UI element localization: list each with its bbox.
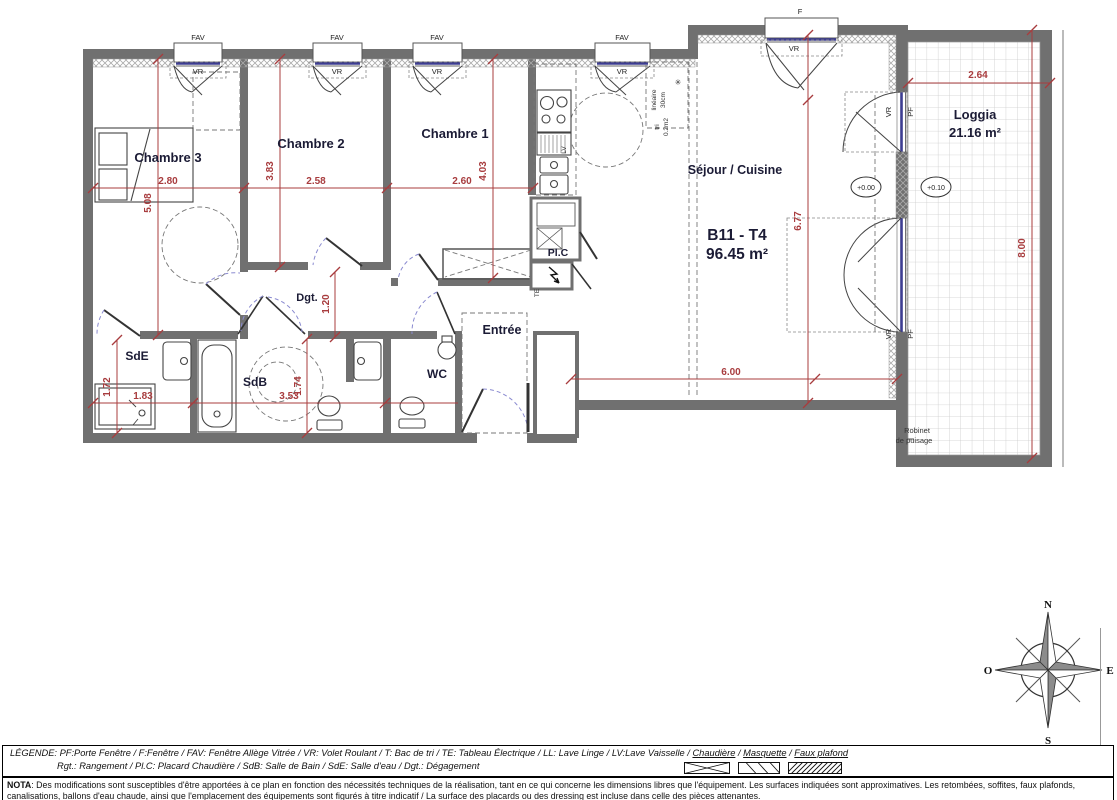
- fav-tag-3: FAV: [430, 33, 444, 42]
- compass-north: N: [1044, 599, 1052, 611]
- dim-loggia-w: 2.64: [968, 70, 988, 81]
- turning-circle-chambre3: [162, 207, 238, 283]
- dim-sde-w: 1.83: [133, 391, 153, 402]
- legend-sep1: /: [735, 748, 743, 758]
- legend-chaudiere: Chaudière: [692, 748, 735, 758]
- robinet-line2: de puisage: [896, 436, 933, 445]
- chaudiere-swatch-icon: [684, 762, 730, 774]
- level-loggia: +0.10: [927, 185, 945, 192]
- bed: [95, 128, 193, 202]
- dim-loggia-h: 8.00: [1017, 238, 1028, 258]
- lineaire-label: linéaire: [651, 89, 658, 110]
- faux-plafond-swatch-icon: [788, 762, 842, 774]
- dim-sejour-h: 6.77: [793, 211, 804, 231]
- label-plc: Pl.C: [548, 247, 569, 259]
- placard-entree-box: [535, 333, 577, 436]
- compass-east: E: [1106, 665, 1113, 677]
- label-sejour: Séjour / Cuisine: [688, 163, 783, 177]
- fav-tag-4: FAV: [615, 33, 629, 42]
- compass-rose: N S E O: [984, 599, 1114, 745]
- vr-tag-4: VR: [617, 67, 628, 76]
- wc-toilet: [399, 397, 425, 428]
- nota-label: NOTA: [7, 780, 31, 790]
- label-sdb: SdB: [243, 375, 267, 389]
- compass-south: S: [1045, 735, 1051, 745]
- dim-sejour-w: 6.00: [721, 367, 741, 378]
- legend-prefix: LÉGENDE: PF:Porte Fenêtre / F:Fenêtre / …: [10, 748, 692, 758]
- f-tag: F: [798, 7, 803, 16]
- wardrobe-chambre3: [193, 72, 240, 130]
- dim-sdb-h: 1.74: [293, 376, 304, 396]
- dim-sde-h: 1.72: [102, 377, 113, 397]
- lineaire-size: 30cm: [660, 92, 667, 108]
- dashed-guides: [162, 62, 875, 434]
- label-chambre3: Chambre 3: [134, 150, 201, 165]
- f-window-sejour: [761, 18, 842, 90]
- unit-area: 96.45 m²: [706, 246, 768, 263]
- sdb-toilet: [317, 396, 342, 430]
- nota-line2: canalisations, ballons d'eau chaude, ain…: [7, 791, 761, 800]
- kitchen-appliances: [537, 90, 571, 194]
- te-label: TE: [534, 288, 541, 297]
- dim-ch1-h: 4.03: [478, 161, 489, 181]
- label-chambre1: Chambre 1: [421, 126, 488, 141]
- legend-swatches: [684, 762, 842, 774]
- label-wc: WC: [427, 367, 447, 381]
- floor-plan-svg: 2.80 5.08 2.58 3.83 2.60 4.03 1.20 6.00 …: [0, 0, 1117, 745]
- dim-ch3-w: 2.80: [158, 176, 178, 187]
- legend-line1: LÉGENDE: PF:Porte Fenêtre / F:Fenêtre / …: [10, 748, 848, 758]
- dim-ch1-w: 2.60: [452, 176, 472, 187]
- tri-label: tri: [654, 124, 661, 129]
- legend-line2: Rgt.: Rangement / Pl.C: Placard Chaudièr…: [57, 761, 479, 771]
- floor-plan-sheet: 2.80 5.08 2.58 3.83 2.60 4.03 1.20 6.00 …: [0, 0, 1117, 800]
- level-sejour: +0.00: [857, 185, 875, 192]
- label-chambre2: Chambre 2: [277, 136, 344, 151]
- vr-tag-5: VR: [789, 44, 800, 53]
- vr-tag-2: VR: [332, 67, 343, 76]
- vr-tag-7: VR: [884, 328, 893, 339]
- wc-basin: [438, 336, 456, 359]
- rangement-cross: [445, 250, 531, 277]
- robinet-line1: Robinet: [904, 426, 931, 435]
- sheet-frame-line: [1100, 628, 1101, 746]
- dim-ch2-w: 2.58: [306, 176, 326, 187]
- legend-masquette: Masquette: [743, 748, 786, 758]
- vr-tag-6: VR: [884, 106, 893, 117]
- tri-size: 0.2m2: [663, 118, 670, 136]
- compass-west: O: [984, 665, 993, 677]
- label-sde: SdE: [125, 349, 148, 363]
- masquette-swatch-icon: [738, 762, 780, 774]
- pf-window-lower: [787, 218, 907, 332]
- legend-box: LÉGENDE: PF:Porte Fenêtre / F:Fenêtre / …: [2, 745, 1114, 777]
- fav-tag-2: FAV: [330, 33, 344, 42]
- pf-tag-2: PF: [906, 329, 915, 339]
- bathtub: [198, 340, 236, 432]
- vr-tag-1: VR: [193, 67, 204, 76]
- legend-faux-plafond: Faux plafond: [794, 748, 848, 758]
- dim-dgt-w: 1.20: [321, 294, 332, 314]
- nota-box: NOTA: Des modifications sont susceptible…: [2, 777, 1114, 800]
- dim-ch3-h: 5.08: [143, 193, 154, 213]
- dim-ch2-h: 3.83: [265, 161, 276, 181]
- lv-label: LV: [561, 146, 568, 154]
- pf-tag-1: PF: [906, 107, 915, 117]
- star-icon: ✳: [675, 78, 682, 87]
- nota-line1: : Des modifications sont susceptibles d'…: [31, 780, 1075, 790]
- fav-tag-1: FAV: [191, 33, 205, 42]
- label-dgt: Dgt.: [296, 292, 317, 304]
- unit-code: B11 - T4: [707, 227, 767, 244]
- label-loggia-area: 21.16 m²: [949, 125, 1002, 140]
- label-entree: Entrée: [483, 323, 522, 337]
- label-loggia: Loggia: [954, 107, 997, 122]
- turning-circle-cuisine: [569, 93, 643, 167]
- closets: [443, 198, 580, 436]
- vr-tag-3: VR: [432, 67, 443, 76]
